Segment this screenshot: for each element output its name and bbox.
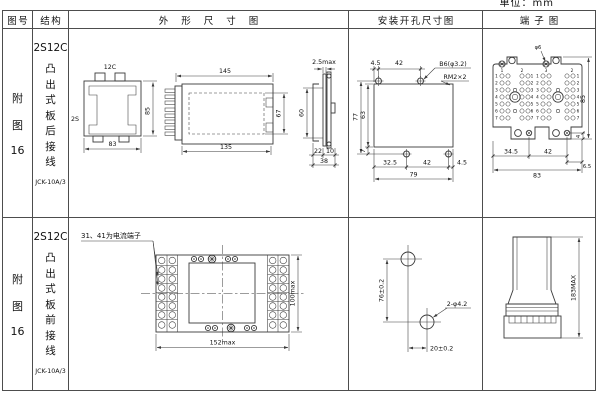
dim-34-5: 34.5: [504, 149, 518, 156]
dim-145: 145: [219, 68, 231, 75]
row-num-left: 4: [495, 95, 498, 100]
dim-12c: 12C: [104, 64, 117, 71]
dim-42-terminal: 42: [544, 149, 552, 156]
row-num-mid2: 1: [536, 74, 539, 79]
row-num-right: 3: [577, 88, 580, 93]
relay-top-view: 12C 2S 85 83: [71, 64, 157, 153]
dim-100max: 100max: [290, 280, 297, 306]
terminal-cell-row2: 183MAX: [483, 218, 595, 390]
dim-79: 79: [409, 172, 417, 179]
row-num-mid2: 2: [536, 81, 539, 86]
outline-cell-row2: 31、41为电流端子: [69, 218, 349, 390]
holes-spec-label: 2-φ4.2: [447, 301, 467, 308]
row-num-right: 2: [577, 81, 580, 86]
mounting-drawing-front: 76±0.2 20±0.2 2-φ4.2: [349, 218, 481, 389]
row-num-mid2: 7: [536, 116, 539, 121]
col-num: 2: [571, 68, 574, 73]
drawing-table: 图号 结构 外形尺寸图 安装开孔尺寸图 端子图 附 图 16 2S12C 凸 出…: [2, 10, 596, 391]
screw-foot-1: [526, 130, 531, 135]
mounting-drawing-rear: 4.5 42 B6(φ3.2) RM2×2 77 63 7: [349, 29, 481, 216]
fig-char: 图: [12, 298, 23, 314]
type-code: JCK-10A/3: [35, 368, 65, 375]
mounting-cell-row2: 76±0.2 20±0.2 2-φ4.2: [349, 218, 483, 390]
type-code: JCK-10A/3: [35, 179, 65, 186]
screw-spec-label: RM2×2: [443, 74, 466, 81]
terminal-plate: 1 2 3 2: [492, 45, 593, 180]
dim-42-top: 42: [395, 60, 403, 67]
dim-38: 38: [320, 158, 328, 165]
structure-char: 出: [45, 78, 56, 94]
structure-row2: 2S12C 凸 出 式 板 前 接 线 JCK-10A/3: [33, 218, 69, 390]
dim-2-5max: 2.5max: [312, 59, 336, 66]
structure-char: 板: [45, 298, 56, 314]
row-num-right: 6: [577, 109, 580, 114]
row-num-mid: 1: [531, 74, 534, 79]
structure-char: 板: [45, 109, 56, 125]
drawing-sheet: 单位：mm 图号 结构 外形尺寸图 安装开孔尺寸图 端子图 附 图 16 2S1…: [0, 0, 600, 400]
relay-panel-view: 2.5max 60 22 10 38: [299, 59, 340, 168]
row-num-left: 7: [495, 116, 498, 121]
hole-foot-2: [553, 130, 560, 137]
mounting-hole-pattern-rear: 4.5 42 B6(φ3.2) RM2×2 77 63 7: [353, 60, 472, 182]
dim-85: 85: [145, 107, 152, 115]
dim-83: 83: [108, 141, 116, 148]
header-mounting: 安装开孔尺寸图: [349, 11, 483, 29]
terminal-drawing-front: 183MAX: [483, 218, 595, 389]
current-terminal-note: 31、41为电流端子: [81, 231, 158, 286]
dim-6-5: 6.5: [583, 164, 591, 170]
fig-char: 图: [12, 117, 23, 133]
outline-cell-row1: 12C 2S 85 83: [69, 29, 349, 218]
dim-85-terminal: 85: [580, 95, 587, 103]
row-num-mid: 4: [531, 95, 534, 100]
outline-drawing-rear: 12C 2S 85 83: [69, 29, 347, 216]
hole-top-1: [509, 57, 515, 63]
dim-4: 4: [576, 134, 582, 138]
header-structure: 结构: [33, 11, 69, 29]
dim-4-5-bot: 4.5: [457, 160, 467, 167]
note-text: 31、41为电流端子: [81, 231, 141, 240]
col-num: 3: [545, 68, 548, 73]
dim-152max: 152max: [210, 340, 236, 347]
fig-no-row1: 附 图 16: [3, 29, 33, 218]
dim-183max: 183MAX: [571, 274, 578, 301]
relay-side-view: 145 135 67: [165, 68, 288, 155]
row-num-left: 6: [495, 109, 498, 114]
dim-60: 60: [299, 109, 306, 117]
fig-no-row2: 附 图 16: [3, 218, 33, 390]
structure-char: 凸: [45, 62, 56, 78]
dim-22: 22: [314, 148, 322, 155]
row-num-left: 3: [495, 88, 498, 93]
hole-dia-label: φ6: [535, 45, 542, 51]
dim-7: 7: [360, 149, 367, 153]
row-num-right: 1: [577, 74, 580, 79]
fig-char: 附: [12, 271, 23, 287]
structure-char: 线: [45, 344, 56, 360]
structure-row1: 2S12C 凸 出 式 板 后 接 线 JCK-10A/3: [33, 29, 69, 218]
row-num-mid: 2: [531, 81, 534, 86]
row-num-left: 2: [495, 81, 498, 86]
row-num-mid: 6: [531, 109, 534, 114]
dim-4-5-top: 4.5: [370, 60, 380, 67]
structure-char: 线: [45, 155, 56, 171]
row-num-left: 1: [495, 74, 498, 79]
fig-char: 附: [12, 90, 23, 106]
hole-top-2: [553, 57, 559, 63]
model-label: 2S12C: [33, 42, 67, 54]
row-num-mid: 3: [531, 88, 534, 93]
fig-num: 16: [11, 144, 25, 157]
fig-num: 16: [11, 325, 25, 338]
row-num-mid2: 3: [536, 88, 539, 93]
structure-char: 式: [45, 93, 56, 109]
header-terminal: 端子图: [483, 11, 595, 29]
mounting-hole-pattern-front: 76±0.2 20±0.2 2-φ4.2: [379, 245, 472, 353]
col-num: 1: [501, 68, 504, 73]
dim-135: 135: [220, 144, 232, 151]
row-num-mid2: 6: [536, 109, 539, 114]
structure-char: 式: [45, 282, 56, 298]
unit-label: 单位：mm: [500, 0, 554, 9]
dim-42-bot: 42: [423, 160, 431, 167]
structure-char: 出: [45, 267, 56, 283]
col-num: 2: [521, 68, 524, 73]
screw-foot-2: [564, 130, 569, 135]
row-num-mid: 5: [531, 102, 534, 107]
dim-10: 10: [326, 148, 334, 155]
dim-32-5: 32.5: [383, 160, 397, 167]
terminal-drawing-rear: 1 2 3 2: [483, 29, 595, 216]
structure-char: 凸: [45, 251, 56, 267]
dim-20: 20±0.2: [430, 346, 453, 353]
hole-foot-1: [515, 130, 522, 137]
mounting-cell-row1: 4.5 42 B6(φ3.2) RM2×2 77 63 7: [349, 29, 483, 218]
structure-char: 接: [45, 329, 56, 345]
dim-76: 76±0.2: [379, 279, 386, 302]
header-fig-no: 图号: [3, 11, 33, 29]
dim-2s: 2S: [71, 116, 79, 123]
outline-drawing-front: 31、41为电流端子: [69, 218, 347, 389]
relay-front-view: 152max 100max: [141, 245, 306, 351]
model-label: 2S12C: [33, 231, 67, 243]
hole-spec-label: B6(φ3.2): [439, 61, 466, 68]
row-num-mid2: 4: [536, 95, 539, 100]
dim-83-terminal: 83: [533, 173, 541, 180]
terminal-cell-row1: 1 2 3 2: [483, 29, 595, 218]
row-num-mid: 7: [531, 116, 534, 121]
structure-char: 后: [45, 124, 56, 140]
dim-63: 63: [360, 111, 367, 119]
row-num-right: 7: [577, 116, 580, 121]
row-num-left: 5: [495, 102, 498, 107]
row-num-mid2: 5: [536, 102, 539, 107]
relay-side-profile: 183MAX: [504, 237, 583, 338]
header-outline: 外形尺寸图: [69, 11, 349, 29]
dim-77: 77: [353, 113, 360, 121]
dim-67: 67: [276, 109, 283, 117]
structure-char: 接: [45, 140, 56, 156]
structure-char: 前: [45, 313, 56, 329]
